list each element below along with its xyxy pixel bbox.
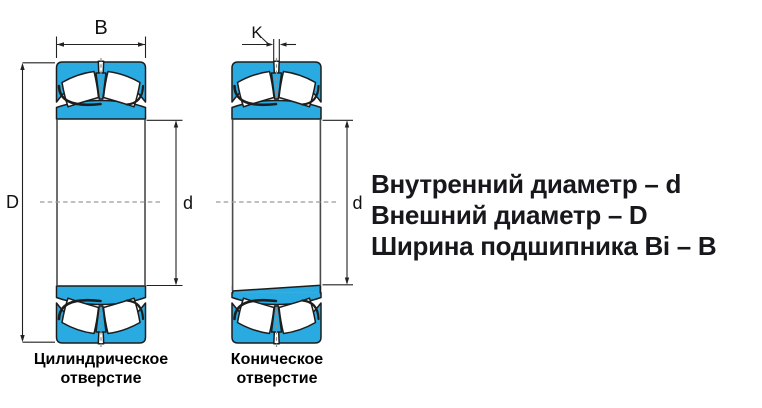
label-D: D <box>6 192 19 212</box>
dimension-D: D <box>6 63 55 342</box>
legend-line-outer-diameter: Внешний диаметр – D <box>371 200 716 231</box>
dimension-d-right: d <box>323 120 363 284</box>
arrowhead-right <box>138 42 145 46</box>
caption-line: отверстие <box>237 370 318 387</box>
legend: Внутренний диаметр – d Внешний диаметр –… <box>371 169 716 262</box>
dimension-d-left: d <box>147 120 194 285</box>
tapered-bore-bearing <box>216 58 338 347</box>
cylindrical-bore-bearing <box>40 58 162 347</box>
legend-line-bearing-width: Ширина подшипника Bi – B <box>371 231 716 262</box>
dimension-B: B <box>57 17 146 58</box>
arrowhead-up <box>345 120 349 127</box>
arrowhead-right <box>267 42 274 46</box>
caption-line: отверстие <box>61 370 142 387</box>
arrowhead-left <box>280 42 287 46</box>
legend-line-inner-diameter: Внутренний диаметр – d <box>371 169 716 200</box>
bearing-diagram: B K D d <box>0 0 368 408</box>
arrowhead-left <box>57 42 64 46</box>
caption-line: Цилиндрическое <box>34 351 168 368</box>
dimension-K: K <box>242 23 296 62</box>
label-d: d <box>352 193 362 213</box>
bearing-dimension-figure: B K D d <box>0 0 762 408</box>
label-B: B <box>94 17 107 39</box>
label-d: d <box>183 193 193 213</box>
caption-tapered-bore: Коническое отверстие <box>231 351 323 387</box>
label-K: K <box>251 23 263 42</box>
arrowhead-down <box>20 335 24 342</box>
arrowhead-down <box>345 278 349 285</box>
caption-line: Коническое <box>231 351 323 368</box>
caption-cylindrical-bore: Цилиндрическое отверстие <box>34 351 168 387</box>
arrowhead-up <box>174 120 178 127</box>
arrowhead-up <box>20 63 24 70</box>
arrowhead-down <box>174 278 178 285</box>
